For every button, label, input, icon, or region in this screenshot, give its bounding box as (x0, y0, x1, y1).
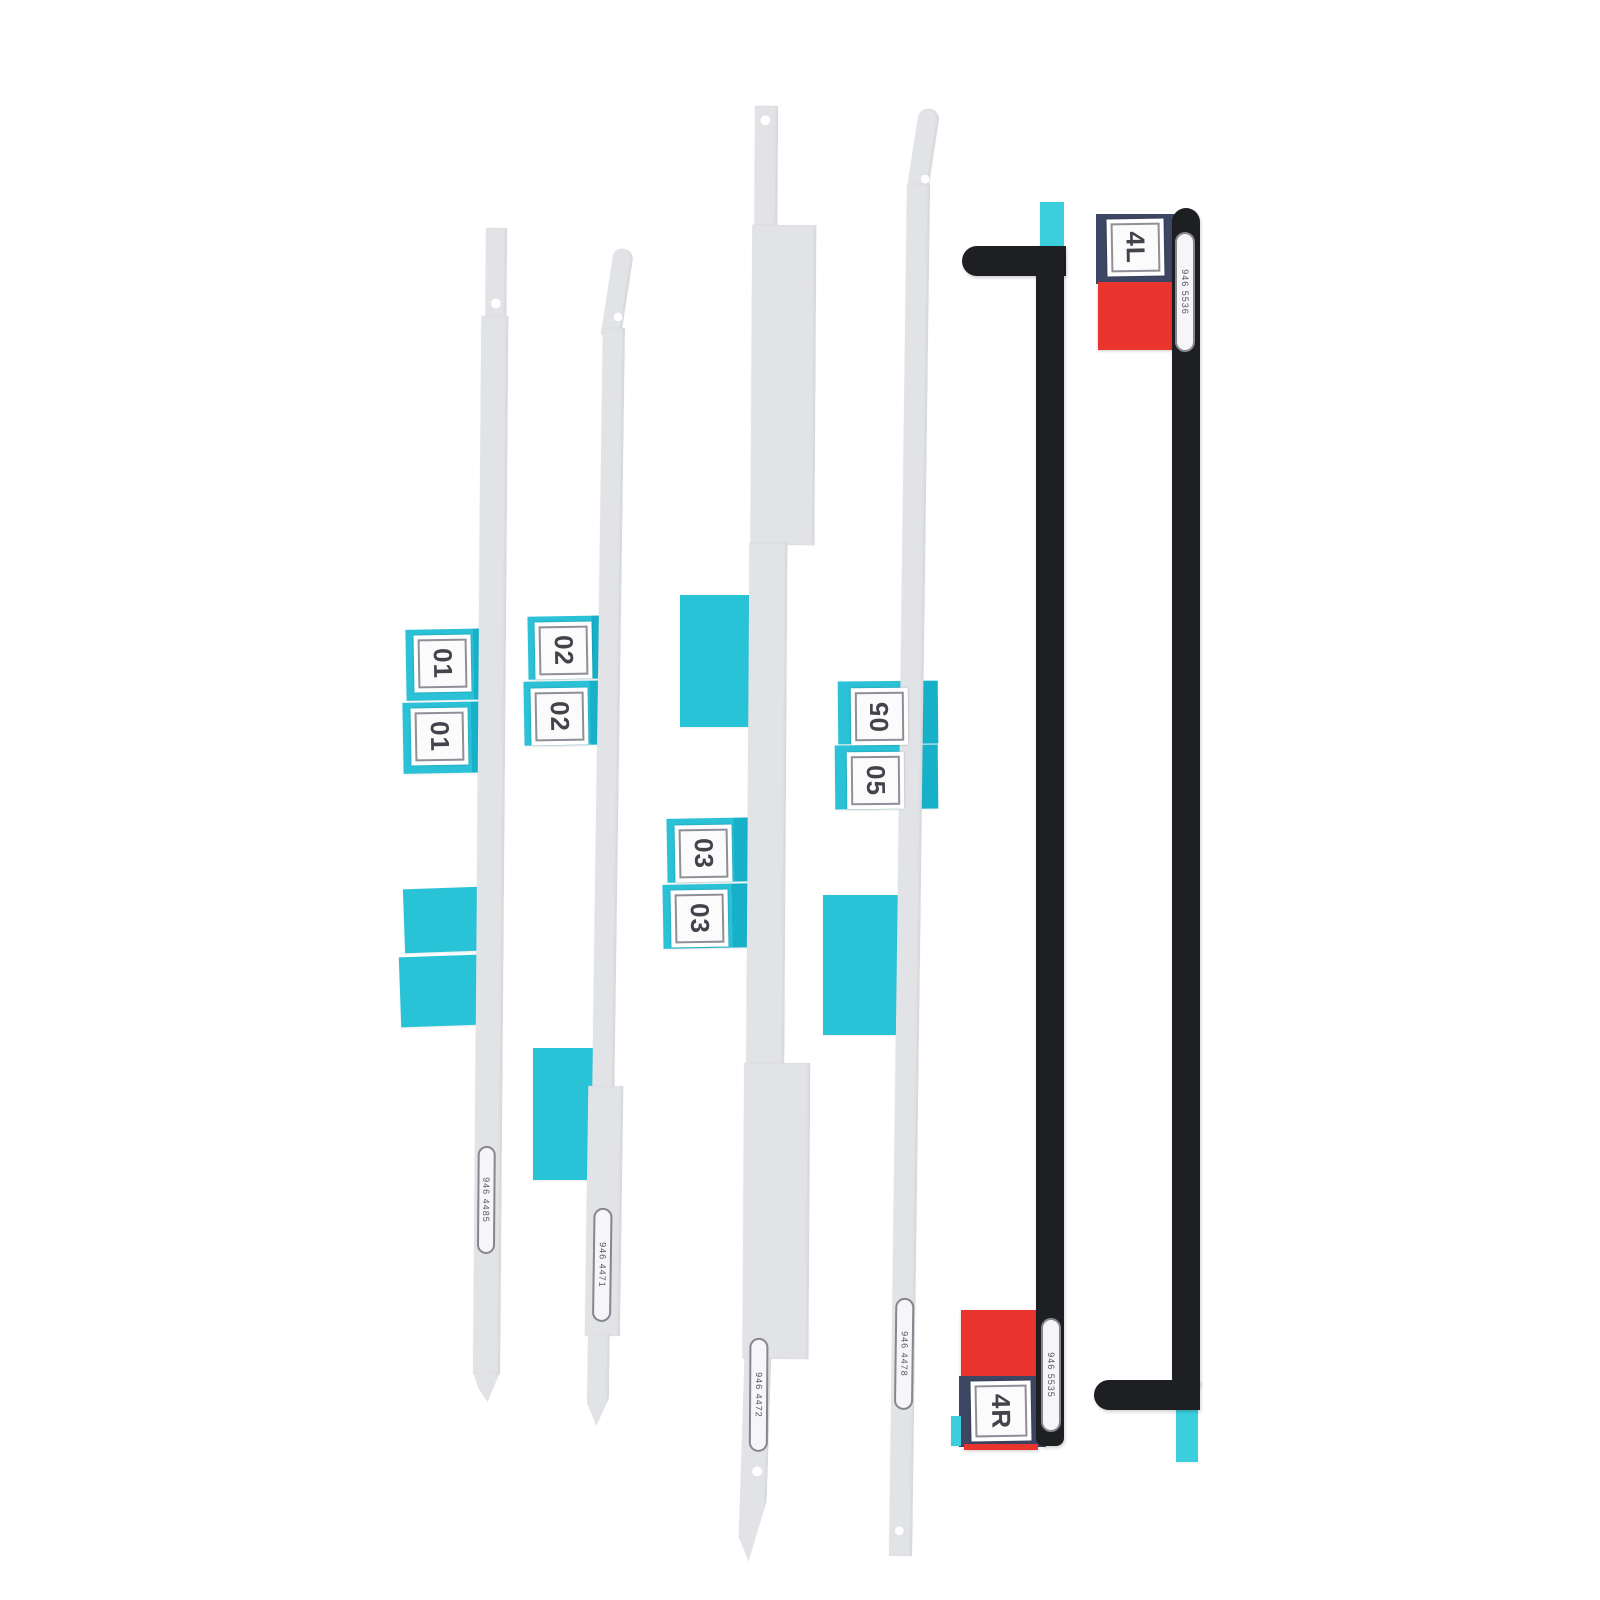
tab-number-text: 4L (1120, 231, 1152, 264)
strip-02-alignment-hole (613, 312, 623, 322)
tab-number-text: 01 (427, 648, 459, 679)
pull-tab-red-4r-sliver (964, 1444, 1038, 1450)
bracket-4r-part-number: 946 5535 (1046, 1352, 1056, 1398)
tab-number-text: 05 (860, 765, 891, 796)
adhesive-strip-01: 946 4485 (471, 228, 510, 1403)
strip-03-lower-hole (752, 1466, 763, 1477)
strip-03-mid (746, 543, 787, 1065)
tab-number-text: 03 (684, 903, 716, 934)
tab-number-frame: 02 (535, 692, 585, 742)
strip-03-part-number: 946 4472 (753, 1372, 763, 1418)
pull-tab-red-4r (961, 1310, 1046, 1378)
tab-number-frame: 05 (855, 692, 904, 741)
pull-tab-red-4l (1098, 282, 1178, 350)
strip-03-wide-lower (742, 1063, 810, 1359)
pull-tab-blank-strip1-lower (399, 955, 481, 1028)
bracket-4l-part-number-pill: 946 5536 (1175, 232, 1195, 352)
tab-number-frame: 4L (1111, 223, 1161, 273)
tab-number-frame: 02 (539, 626, 589, 676)
strip-01-part-number-pill: 946 4485 (477, 1146, 496, 1254)
strip-02-end-stub (587, 1334, 610, 1426)
strip-05-alignment-hole (920, 174, 930, 184)
product-photo-adhesive-strip-kit: 946 4485 01 01 946 4471 02 02 946 4472 (0, 0, 1600, 1600)
adhesive-strip-05: 946 4478 (881, 106, 936, 1561)
strip-03-alignment-hole (760, 115, 771, 126)
adhesive-strip-02: 946 4471 (577, 246, 636, 1431)
tab-number-text: 4R (985, 1393, 1017, 1429)
strip-01-alignment-hole (490, 298, 501, 309)
tab-number-text: 03 (688, 838, 720, 869)
strip-01-pointed-end (473, 1372, 500, 1402)
bracket-4l-vertical (1172, 208, 1200, 1386)
bracket-4l-part-number: 946 5536 (1180, 269, 1190, 315)
tab-number-square-4l: 4L (1107, 219, 1165, 277)
bracket-4r-part-number-pill: 946 5535 (1041, 1318, 1061, 1432)
strip-02-part-number-pill: 946 4471 (592, 1208, 613, 1322)
strip-03-wide-upper (750, 225, 816, 545)
tab-number-square-01-upper: 01 (414, 635, 472, 693)
tab-number-square-01-lower: 01 (411, 708, 469, 766)
bracket-4l-bottom-arm (1094, 1380, 1200, 1410)
tab-number-frame: 01 (415, 712, 465, 762)
pull-tab-cyan-4r-sliver (951, 1416, 961, 1446)
tab-number-text: 02 (544, 701, 576, 732)
tab-number-frame: 4R (975, 1385, 1028, 1438)
adhesive-strip-03: 946 4472 (739, 106, 820, 1566)
tab-number-frame: 05 (851, 756, 900, 805)
tab-number-square-02-lower: 02 (531, 688, 589, 746)
tab-number-frame: 01 (418, 639, 468, 689)
strip-05-part-number-pill: 946 4478 (894, 1298, 914, 1410)
strip-05-part-number: 946 4478 (899, 1331, 910, 1377)
tab-number-text: 01 (424, 721, 456, 752)
tab-number-frame: 03 (679, 829, 729, 879)
strip-02-top-hook (601, 247, 634, 337)
tab-number-square-02-upper: 02 (535, 622, 593, 680)
strip-01-part-number: 946 4485 (481, 1177, 491, 1223)
pull-tab-blank-strip1-upper (403, 887, 481, 954)
tab-number-square-03-lower: 03 (671, 890, 729, 948)
pull-tab-cyan-4l-bottom (1176, 1408, 1198, 1462)
tab-number-square-05-lower: 05 (847, 752, 904, 809)
tab-number-text: 05 (864, 701, 895, 732)
bracket-4r-vertical (1036, 246, 1064, 1446)
strip-02-body (592, 328, 625, 1088)
tab-number-frame: 03 (675, 894, 725, 944)
tab-number-square-4r: 4R (970, 1380, 1031, 1441)
strip-03-part-number-pill: 946 4472 (749, 1338, 769, 1452)
tab-number-square-05-upper: 05 (851, 688, 908, 745)
strip-02-part-number: 946 4471 (597, 1242, 608, 1288)
tab-number-square-03-upper: 03 (675, 825, 733, 883)
strip-05-lower-hole (894, 1526, 904, 1536)
tab-number-text: 02 (548, 635, 580, 666)
